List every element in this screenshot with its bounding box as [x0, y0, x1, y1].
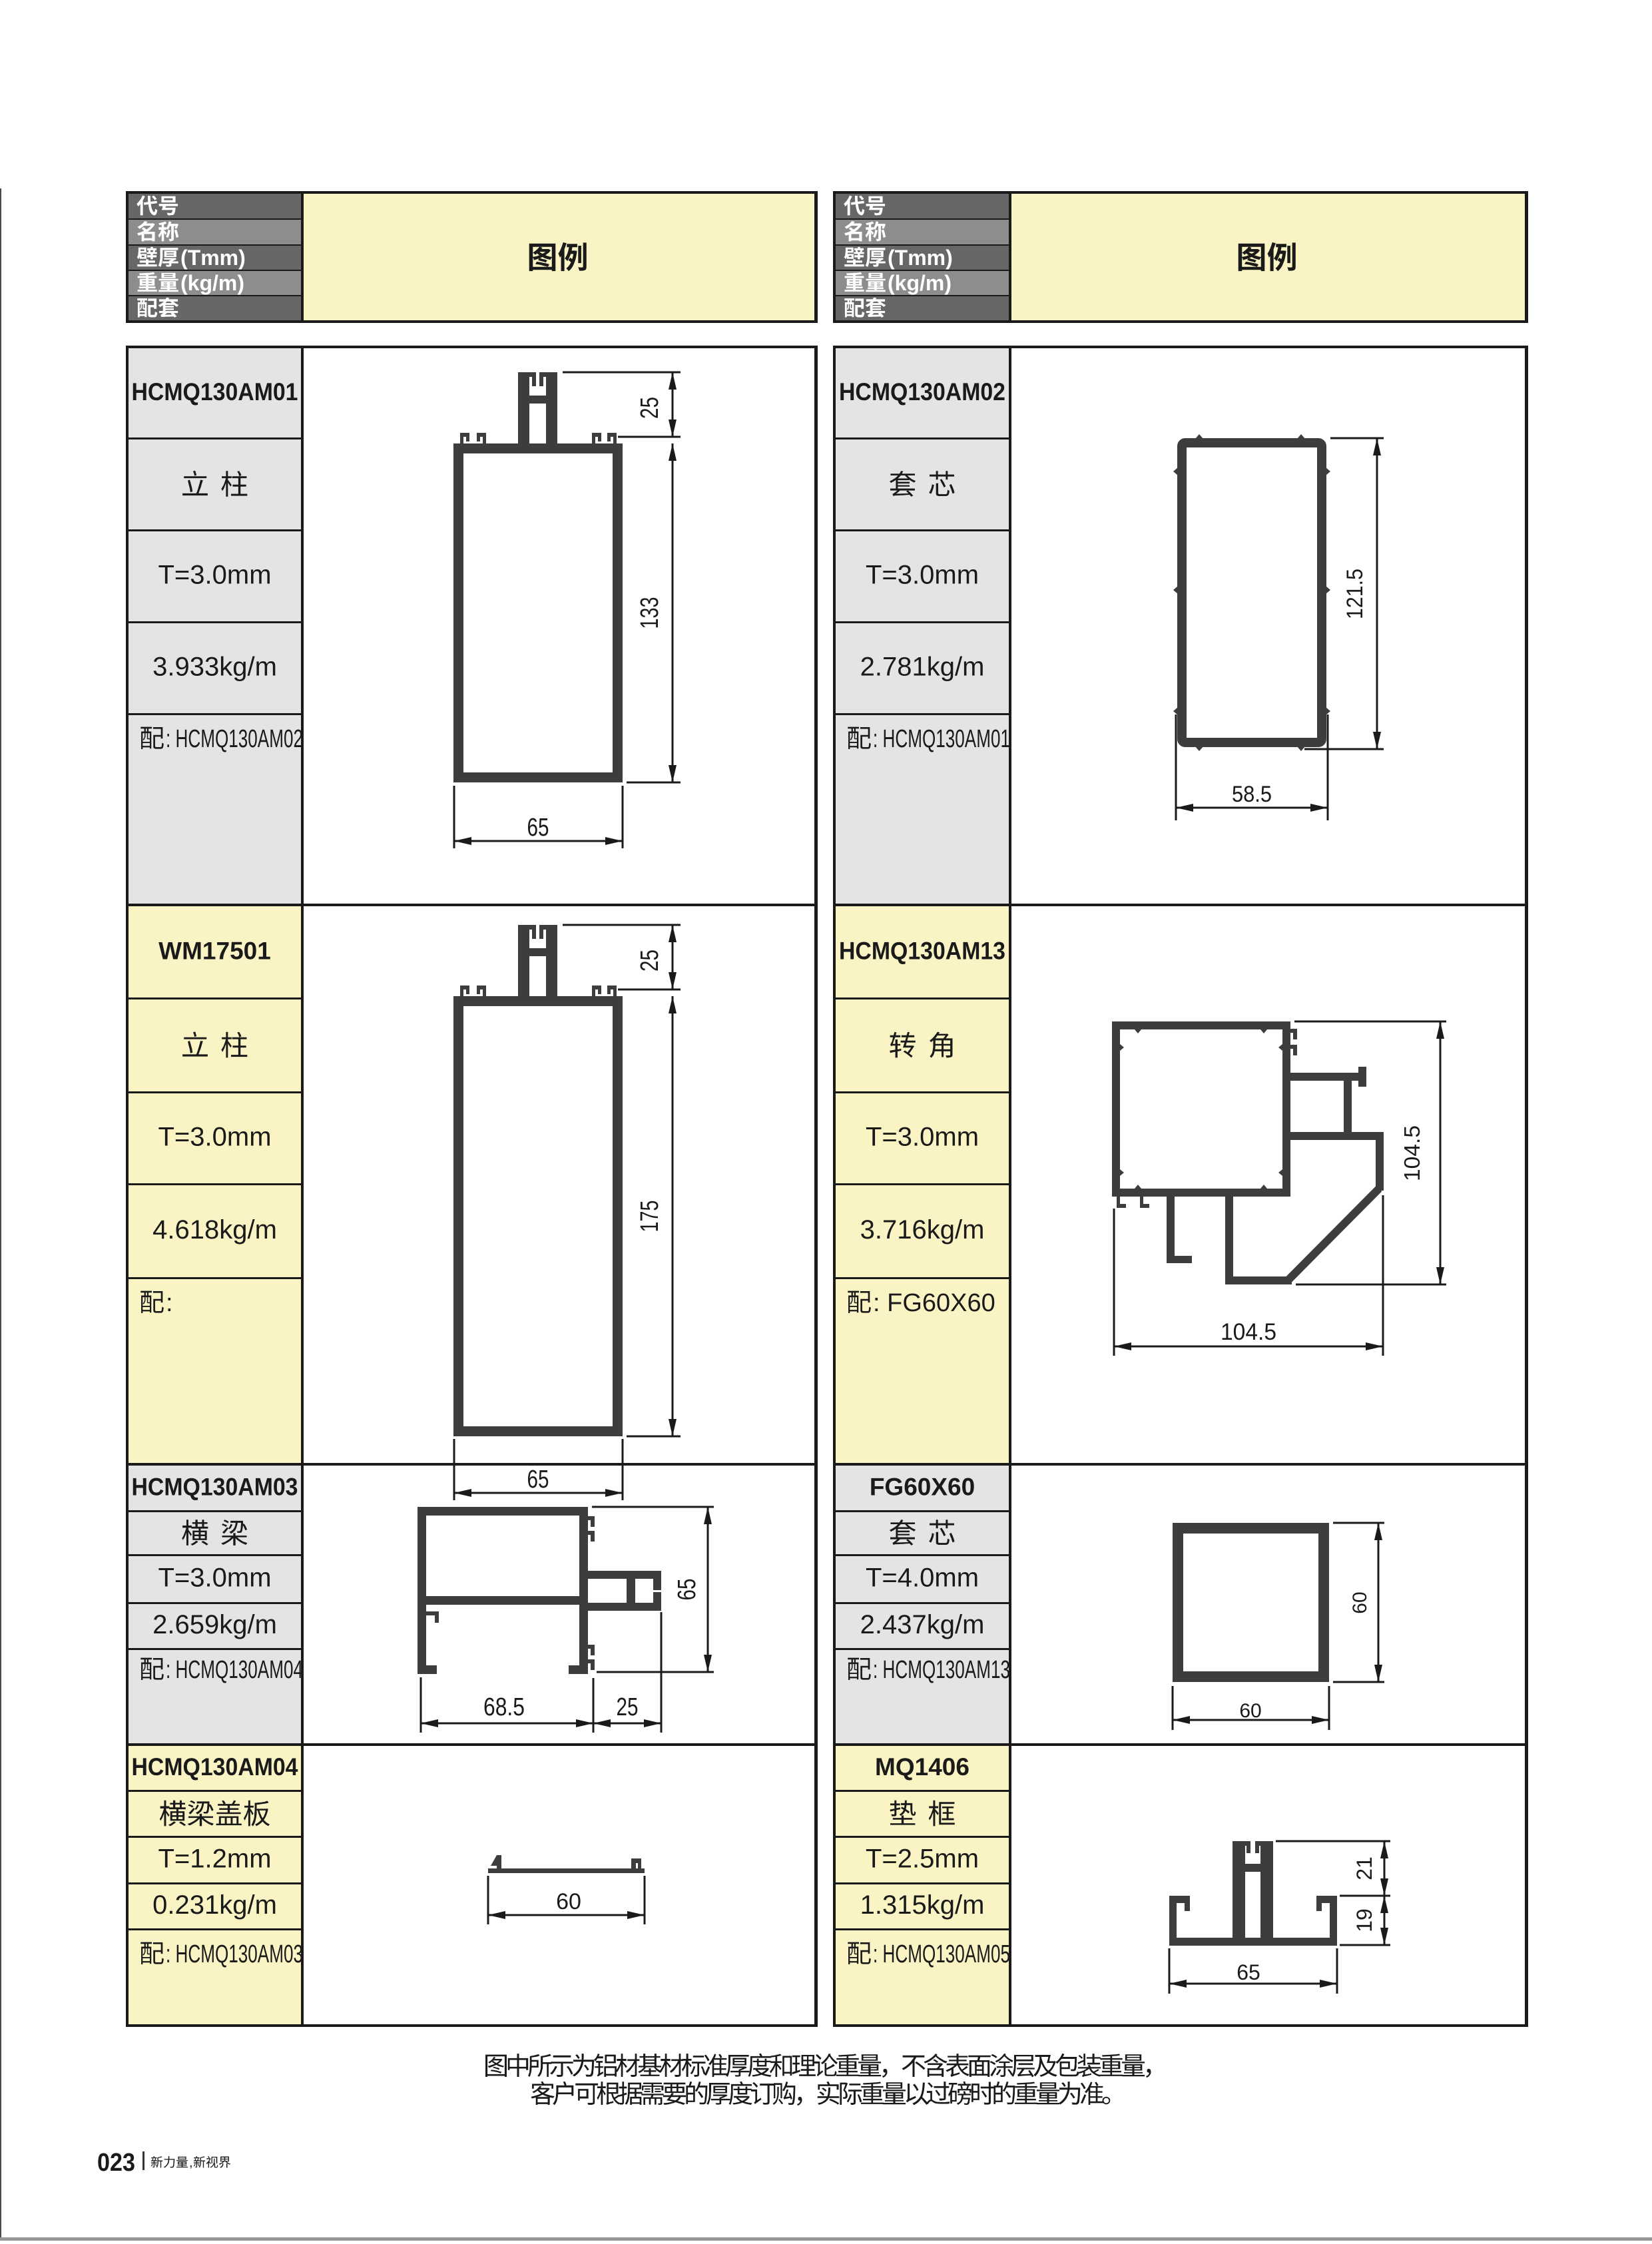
svg-text:T=1.2mm: T=1.2mm — [158, 1844, 271, 1874]
svg-text:HCMQ130AM13: HCMQ130AM13 — [839, 938, 1005, 965]
svg-text:2.437kg/m: 2.437kg/m — [860, 1610, 985, 1639]
svg-text:25: 25 — [636, 950, 664, 972]
svg-text:(Tmm): (Tmm) — [888, 246, 953, 270]
svg-text:60: 60 — [1239, 1700, 1261, 1722]
svg-text:65: 65 — [527, 1466, 549, 1494]
svg-text:65: 65 — [1237, 1960, 1260, 1984]
svg-text:,: , — [189, 2155, 193, 2170]
svg-text:HCMQ130AM03: HCMQ130AM03 — [132, 1474, 298, 1501]
svg-text:HCMQ130AM04: HCMQ130AM04 — [132, 1753, 298, 1781]
svg-text:60: 60 — [556, 1889, 581, 1914]
svg-text:0.231kg/m: 0.231kg/m — [152, 1890, 277, 1920]
svg-text:023: 023 — [97, 2149, 135, 2177]
svg-text:60: 60 — [1349, 1591, 1371, 1613]
svg-text:(kg/m): (kg/m) — [180, 271, 244, 295]
svg-text:4.618kg/m: 4.618kg/m — [152, 1215, 277, 1245]
svg-text:T=3.0mm: T=3.0mm — [866, 1123, 979, 1152]
svg-text:: HCMQ130AM02: : HCMQ130AM02 — [166, 725, 303, 753]
svg-text:(Tmm): (Tmm) — [180, 246, 246, 270]
svg-text:T=3.0mm: T=3.0mm — [158, 1123, 271, 1152]
svg-text:104.5: 104.5 — [1400, 1125, 1424, 1181]
svg-text:: HCMQ130AM13: : HCMQ130AM13 — [873, 1656, 1010, 1684]
svg-text:65: 65 — [673, 1579, 701, 1601]
svg-text:: HCMQ130AM01: : HCMQ130AM01 — [873, 725, 1010, 753]
svg-text:FG60X60: FG60X60 — [870, 1474, 975, 1501]
svg-text:58.5: 58.5 — [1232, 782, 1272, 807]
svg-text:25: 25 — [617, 1693, 639, 1721]
svg-text:68.5: 68.5 — [483, 1693, 525, 1721]
svg-text:175: 175 — [636, 1201, 664, 1233]
svg-text:MQ1406: MQ1406 — [875, 1753, 969, 1781]
svg-text:T=3.0mm: T=3.0mm — [158, 561, 271, 590]
svg-text:: FG60X60: : FG60X60 — [873, 1289, 995, 1317]
svg-text:: HCMQ130AM03: : HCMQ130AM03 — [166, 1940, 303, 1968]
svg-text:T=4.0mm: T=4.0mm — [866, 1563, 979, 1593]
svg-text:T=3.0mm: T=3.0mm — [866, 561, 979, 590]
svg-text:3.933kg/m: 3.933kg/m — [152, 653, 277, 682]
svg-text:21: 21 — [1352, 1856, 1376, 1880]
svg-text:3.716kg/m: 3.716kg/m — [860, 1215, 985, 1245]
svg-text:HCMQ130AM01: HCMQ130AM01 — [132, 378, 298, 406]
svg-text:1.315kg/m: 1.315kg/m — [860, 1890, 985, 1920]
svg-text:104.5: 104.5 — [1221, 1319, 1276, 1345]
svg-text:HCMQ130AM02: HCMQ130AM02 — [839, 378, 1005, 406]
svg-text:65: 65 — [527, 814, 549, 842]
svg-text:25: 25 — [636, 397, 664, 419]
svg-text:2.781kg/m: 2.781kg/m — [860, 653, 985, 682]
svg-text:WM17501: WM17501 — [158, 938, 271, 965]
svg-text:19: 19 — [1352, 1908, 1376, 1932]
svg-text:: HCMQ130AM05: : HCMQ130AM05 — [873, 1940, 1010, 1968]
svg-text:: HCMQ130AM04: : HCMQ130AM04 — [166, 1656, 303, 1684]
svg-text:121.5: 121.5 — [1342, 569, 1368, 619]
svg-text::: : — [166, 1289, 173, 1317]
svg-text:(kg/m): (kg/m) — [888, 271, 952, 295]
svg-text:T=3.0mm: T=3.0mm — [158, 1563, 271, 1593]
svg-text:T=2.5mm: T=2.5mm — [866, 1844, 979, 1874]
svg-text:2.659kg/m: 2.659kg/m — [152, 1610, 277, 1639]
svg-text:133: 133 — [636, 597, 664, 629]
